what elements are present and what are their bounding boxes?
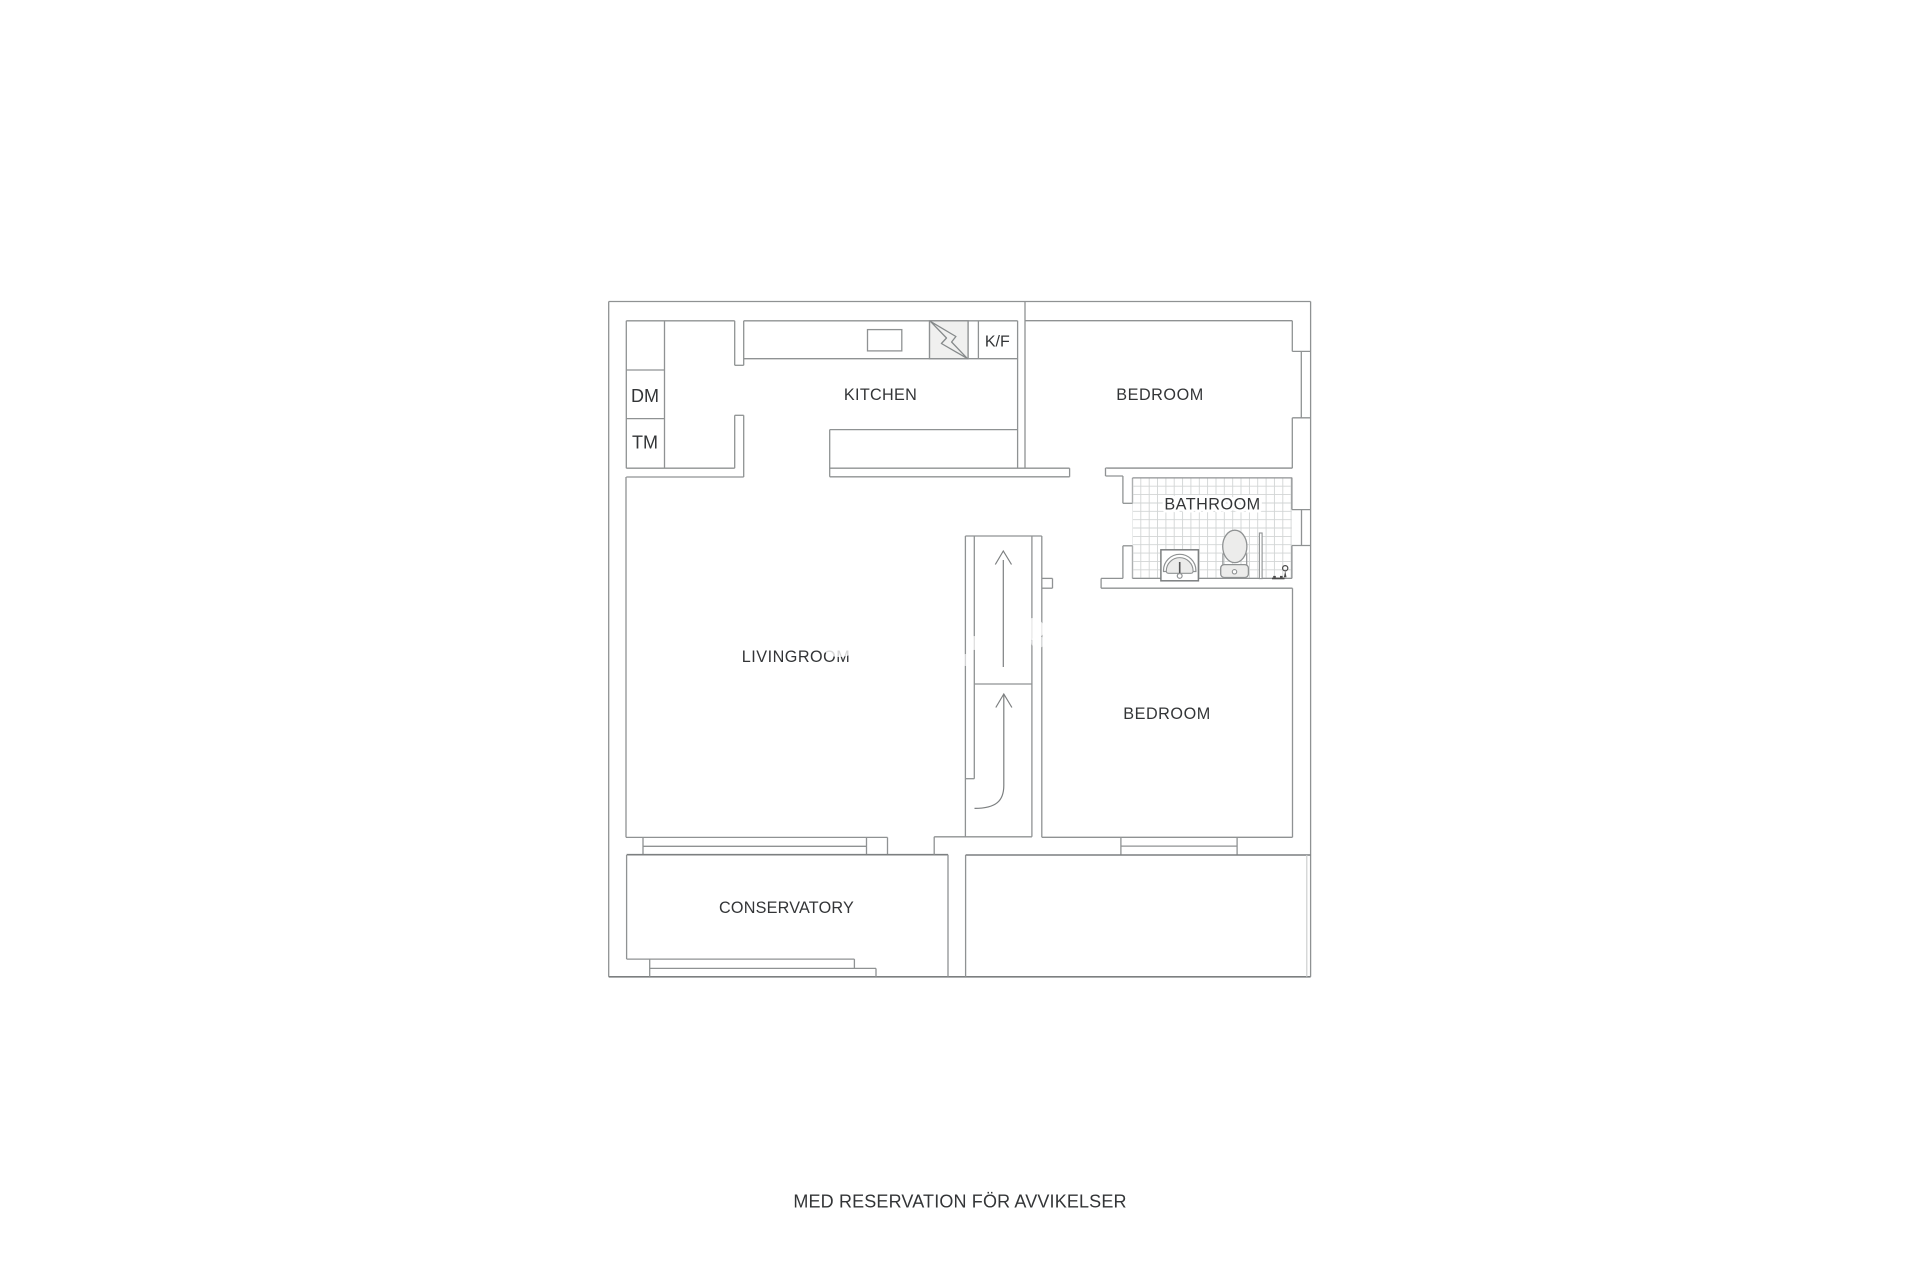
svg-text:BATHROOM: BATHROOM bbox=[1164, 496, 1260, 514]
svg-text:TM: TM bbox=[632, 433, 658, 453]
svg-text:DM: DM bbox=[631, 386, 659, 406]
svg-text:BEDROOM: BEDROOM bbox=[1116, 386, 1204, 404]
svg-text:CONSERVATORY: CONSERVATORY bbox=[719, 899, 854, 917]
svg-text:BEDROOM: BEDROOM bbox=[1123, 705, 1211, 723]
svg-text:K/F: K/F bbox=[985, 333, 1010, 350]
svg-text:MED RESERVATION FÖR AVVIKELSER: MED RESERVATION FÖR AVVIKELSER bbox=[793, 1192, 1126, 1212]
svg-text:KITCHEN: KITCHEN bbox=[844, 386, 917, 404]
